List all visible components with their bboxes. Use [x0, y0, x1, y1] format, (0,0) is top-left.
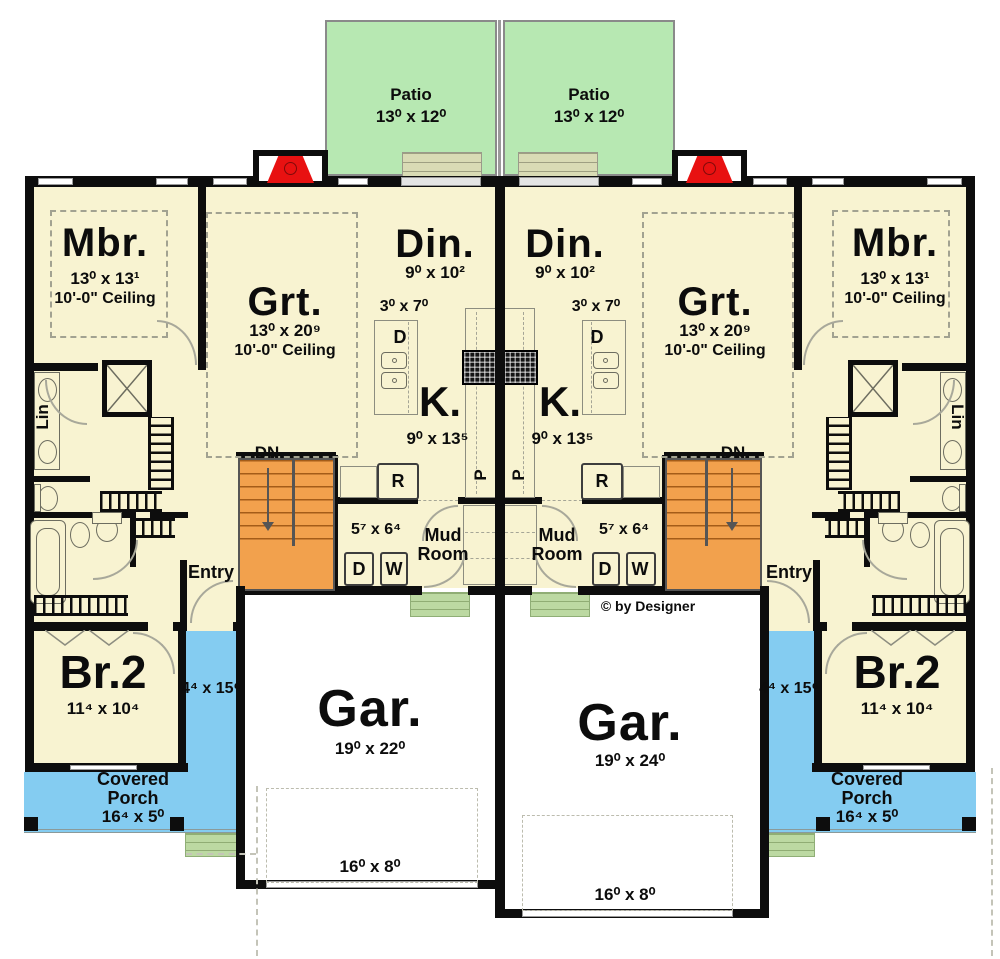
patio-label: Patio	[503, 86, 675, 104]
br2-label: Br.2	[28, 648, 178, 696]
entry-label: Entry	[178, 563, 244, 582]
mbr-label: Mbr.	[40, 222, 170, 264]
dishwasher-label: D	[583, 328, 611, 347]
grt-ceiling: 10'-0" Ceiling	[640, 343, 790, 360]
din-dims: 9⁰ x 10²	[380, 264, 490, 282]
mbr-ceiling: 10'-0" Ceiling	[830, 291, 960, 308]
side-porch-dims: 4⁴ x 15⁶	[754, 681, 824, 698]
din-dims: 9⁰ x 10²	[510, 264, 620, 282]
pantry-label: P	[472, 458, 490, 492]
kitchen-dims: 9⁰ x 13⁵	[510, 430, 615, 448]
pantry-label: P	[510, 458, 528, 492]
garage-right-door-dims: 16⁰ x 8⁰	[545, 886, 705, 904]
fridge-label: R	[581, 472, 623, 491]
covered-porch-dims: 16⁴ x 5⁰	[792, 808, 942, 826]
patio-label: Patio	[325, 86, 497, 104]
copyright-text: © by Designer	[588, 599, 708, 614]
grt-label: Grt.	[210, 281, 360, 323]
dishwasher-label: D	[386, 328, 414, 347]
covered-porch-label: Covered Porch	[812, 770, 922, 808]
washer-label: W	[380, 560, 408, 579]
mud-dims: 5⁷ x 6⁴	[343, 522, 409, 539]
grt-dims: 13⁰ x 20⁹	[210, 322, 360, 340]
side-porch-dims: 4⁴ x 15⁶	[176, 681, 246, 698]
linen-label: Lin	[34, 400, 52, 434]
garage-left-door-dims: 16⁰ x 8⁰	[290, 858, 450, 876]
grt-dims: 13⁰ x 20⁹	[640, 322, 790, 340]
mud-label: Mud Room	[526, 526, 588, 564]
mbr-ceiling: 10'-0" Ceiling	[40, 291, 170, 308]
mbr-dims: 13⁰ x 13¹	[830, 270, 960, 288]
kitchen-label: K.	[520, 380, 600, 424]
garage-right-dims: 19⁰ x 24⁰	[538, 752, 722, 770]
stairs-dn-label: DN	[240, 444, 294, 462]
covered-porch-label: Covered Porch	[78, 770, 188, 808]
br2-dims: 11⁴ x 10⁴	[822, 700, 972, 718]
patio-dims: 13⁰ x 12⁰	[325, 108, 497, 126]
kitchen-label: K.	[400, 380, 480, 424]
grt-label: Grt.	[640, 281, 790, 323]
garage-right-label: Gar.	[538, 696, 722, 751]
garage-left-dims: 19⁰ x 22⁰	[278, 740, 462, 758]
din-label: Din.	[510, 223, 620, 265]
din-label: Din.	[380, 223, 490, 265]
dryer-label: D	[590, 560, 620, 579]
br2-label: Br.2	[822, 648, 972, 696]
grt-ceiling: 10'-0" Ceiling	[210, 343, 360, 360]
washer-label: W	[626, 560, 654, 579]
garage-left-label: Gar.	[278, 682, 462, 737]
mbr-label: Mbr.	[830, 222, 960, 264]
covered-porch-dims: 16⁴ x 5⁰	[58, 808, 208, 826]
patio-dims: 13⁰ x 12⁰	[503, 108, 675, 126]
br2-dims: 11⁴ x 10⁴	[28, 700, 178, 718]
dryer-label: D	[344, 560, 374, 579]
stairs-dn-label: DN	[706, 444, 760, 462]
floor-plan: Patio 13⁰ x 12⁰ Patio 13⁰ x 12⁰ Mbr. 13⁰…	[0, 0, 1000, 959]
island-dims: 3⁰ x 7⁰	[553, 299, 639, 316]
fridge-label: R	[377, 472, 419, 491]
labels: Patio 13⁰ x 12⁰ Patio 13⁰ x 12⁰ Mbr. 13⁰…	[0, 0, 1000, 959]
mud-dims: 5⁷ x 6⁴	[591, 522, 657, 539]
entry-label: Entry	[756, 563, 822, 582]
kitchen-dims: 9⁰ x 13⁵	[385, 430, 490, 448]
mbr-dims: 13⁰ x 13¹	[40, 270, 170, 288]
linen-label: Lin	[948, 400, 966, 434]
island-dims: 3⁰ x 7⁰	[361, 299, 447, 316]
mud-label: Mud Room	[412, 526, 474, 564]
